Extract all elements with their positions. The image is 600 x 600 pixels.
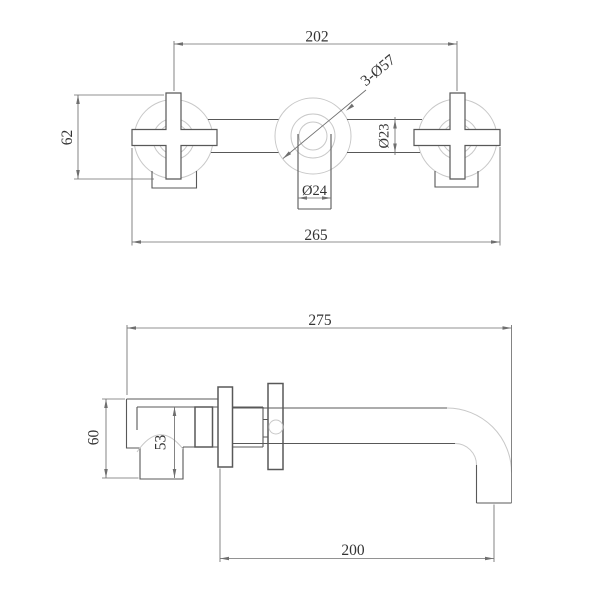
dim-202: 202 — [174, 29, 457, 92]
flange-plate-2 — [268, 384, 283, 470]
flange-plate-1 — [218, 387, 233, 467]
dim-200-label: 200 — [341, 542, 365, 559]
dim-200: 200 — [220, 469, 494, 563]
right-cross-handle — [414, 93, 500, 179]
dim-60-label: 60 — [86, 430, 103, 446]
side-view: 275 60 53 200 — [86, 312, 512, 562]
dim-62-label: 62 — [59, 130, 76, 146]
front-view: 202 62 265 Ø23 Ø24 — [59, 29, 500, 246]
dim-3x57-label: 3-Ø57 — [357, 51, 399, 89]
spout-outer-curve — [447, 408, 512, 473]
dim-275: 275 — [127, 312, 512, 395]
dim-60: 60 — [86, 399, 139, 478]
dim-23: Ø23 — [377, 117, 397, 155]
center-escutcheon-circles — [275, 98, 351, 174]
dim-202-label: 202 — [305, 29, 328, 46]
dim-24: Ø24 — [298, 183, 331, 200]
dim-53: 53 — [153, 407, 177, 478]
spout-straight-lines — [233, 408, 456, 444]
dim-265-label: 265 — [304, 227, 328, 244]
dim-23-label: Ø23 — [377, 124, 393, 149]
spout-inner-curve — [455, 444, 477, 466]
cartridge-nut — [195, 407, 213, 447]
dim-24-label: Ø24 — [302, 183, 328, 199]
dim-53-label: 53 — [153, 435, 170, 451]
dim-275-label: 275 — [308, 312, 332, 329]
drawing-canvas: 202 62 265 Ø23 Ø24 — [0, 0, 600, 600]
spout-tip — [477, 465, 512, 503]
technical-drawing: 202 62 265 Ø23 Ø24 — [0, 0, 600, 600]
